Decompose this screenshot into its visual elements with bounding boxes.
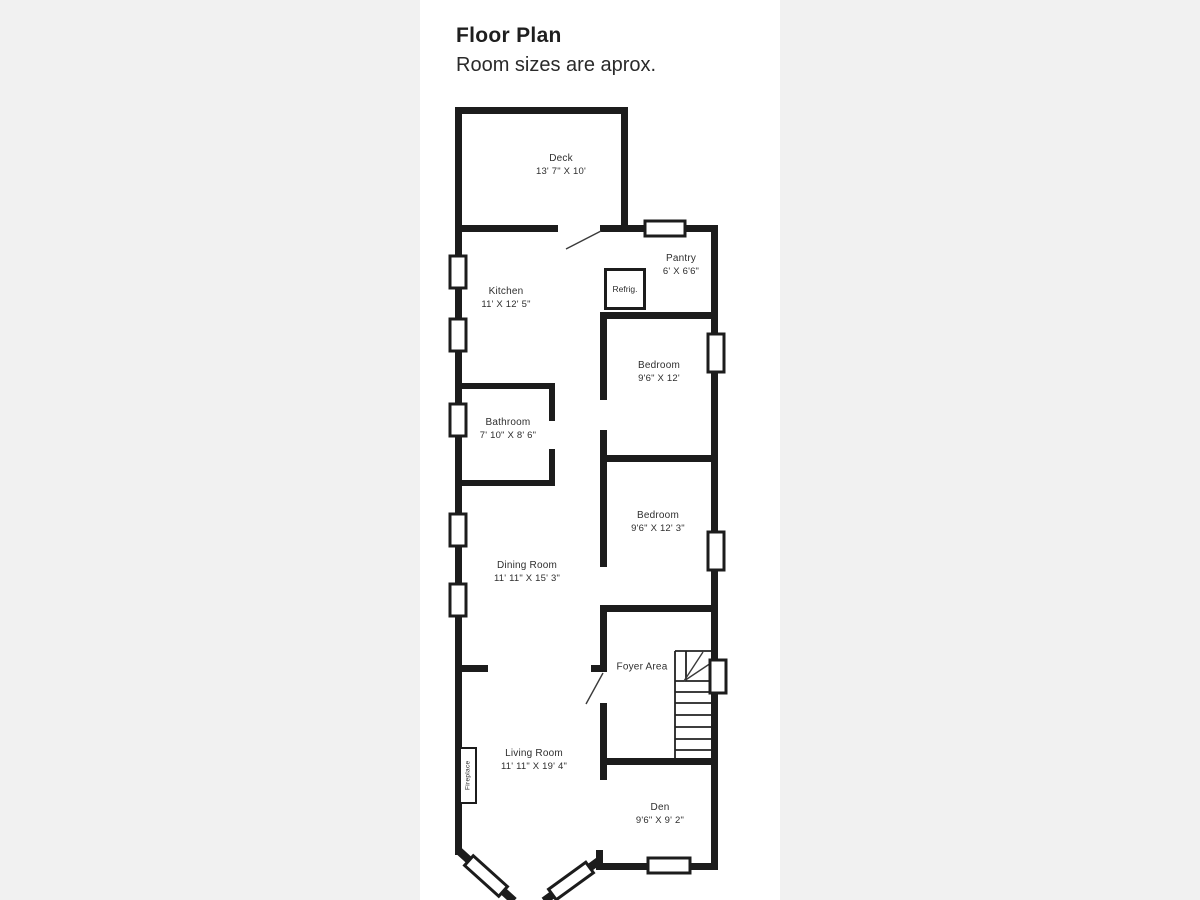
stair-winder-diagonal (684, 663, 711, 681)
room-label-bathroom: Bathroom 7' 10" X 8' 6" (480, 416, 536, 442)
room-name: Bathroom (480, 416, 536, 429)
bedroom1-window (708, 334, 724, 372)
refrigerator: Refrig. (604, 268, 646, 310)
bay-window-left (465, 856, 508, 896)
dining-window-1 (450, 514, 466, 546)
room-label-kitchen: Kitchen 11' X 12' 5" (481, 285, 530, 311)
room-label-bedroom-2: Bedroom 9'6" X 12' 3" (631, 509, 685, 535)
foyer-left-wall-lower (600, 703, 607, 780)
bathroom-right-wall-lower (549, 449, 555, 486)
room-dims: 7' 10" X 8' 6" (480, 429, 536, 442)
deck-top-wall (455, 107, 628, 114)
room-name: Kitchen (481, 285, 530, 298)
deck-left-wall (455, 107, 462, 232)
room-label-pantry: Pantry 6' X 6'6" (663, 252, 699, 278)
foyer-den-divider (600, 758, 718, 765)
bathroom-right-wall-upper (549, 383, 555, 421)
room-dims: 9'6" X 9' 2" (636, 814, 684, 827)
room-name: Deck (536, 152, 586, 165)
room-dims: 9'6" X 12' 3" (631, 522, 685, 535)
bay-window-right (549, 862, 594, 900)
deck-right-wall (621, 107, 628, 232)
floor-plan-page: Floor Plan Room sizes are aprox. (0, 0, 1200, 900)
room-dims: 11' X 12' 5" (481, 298, 530, 311)
room-name: Pantry (663, 252, 699, 265)
room-dims: 6' X 6'6" (663, 265, 699, 278)
floor-plan-drawing (0, 0, 1200, 900)
room-dims: 11' 11" X 15' 3" (494, 572, 560, 585)
pantry-bedroom-divider (600, 312, 718, 319)
foyer-door-stub (591, 665, 601, 672)
kitchen-window-2 (450, 319, 466, 351)
pantry-window (645, 221, 685, 236)
room-name: Bedroom (638, 359, 680, 372)
foyer-door-swing (586, 673, 603, 704)
bathroom-window (450, 404, 466, 436)
bedroom-bedroom-divider (600, 455, 718, 462)
room-dims: 9'6" X 12' (638, 372, 680, 385)
room-dims: 13' 7" X 10' (536, 165, 586, 178)
door-swings (566, 231, 603, 704)
room-label-bedroom-1: Bedroom 9'6" X 12' (638, 359, 680, 385)
room-name: Foyer Area (617, 661, 668, 674)
staircase (675, 651, 711, 758)
top-wall-left-segment (455, 225, 558, 232)
bedroom-foyer-divider (600, 605, 718, 612)
room-label-foyer: Foyer Area (617, 661, 668, 674)
room-label-dining-room: Dining Room 11' 11" X 15' 3" (494, 559, 560, 585)
room-name: Den (636, 801, 684, 814)
hall-wall-segment-b (600, 430, 607, 567)
room-name: Dining Room (494, 559, 560, 572)
room-label-den: Den 9'6" X 9' 2" (636, 801, 684, 827)
bedroom2-window (708, 532, 724, 570)
deck-door-swing (566, 231, 601, 249)
windows (450, 221, 726, 900)
room-name: Living Room (501, 747, 567, 760)
hall-wall-segment-a (600, 312, 607, 400)
kitchen-window-1 (450, 256, 466, 288)
refrigerator-label: Refrig. (612, 284, 637, 294)
dining-window-2 (450, 584, 466, 616)
foyer-side-door (710, 660, 726, 693)
fireplace-label: Fireplace (465, 761, 472, 790)
bathroom-top-wall (455, 383, 555, 389)
room-name: Bedroom (631, 509, 685, 522)
den-window (648, 858, 690, 873)
room-label-deck: Deck 13' 7" X 10' (536, 152, 586, 178)
room-dims: 11' 11" X 19' 4" (501, 760, 567, 773)
foyer-left-wall-upper (600, 607, 607, 672)
fireplace: Fireplace (459, 747, 477, 804)
dining-living-stub (462, 665, 488, 672)
room-label-living-room: Living Room 11' 11" X 19' 4" (501, 747, 567, 773)
bathroom-bottom-wall (455, 480, 555, 486)
